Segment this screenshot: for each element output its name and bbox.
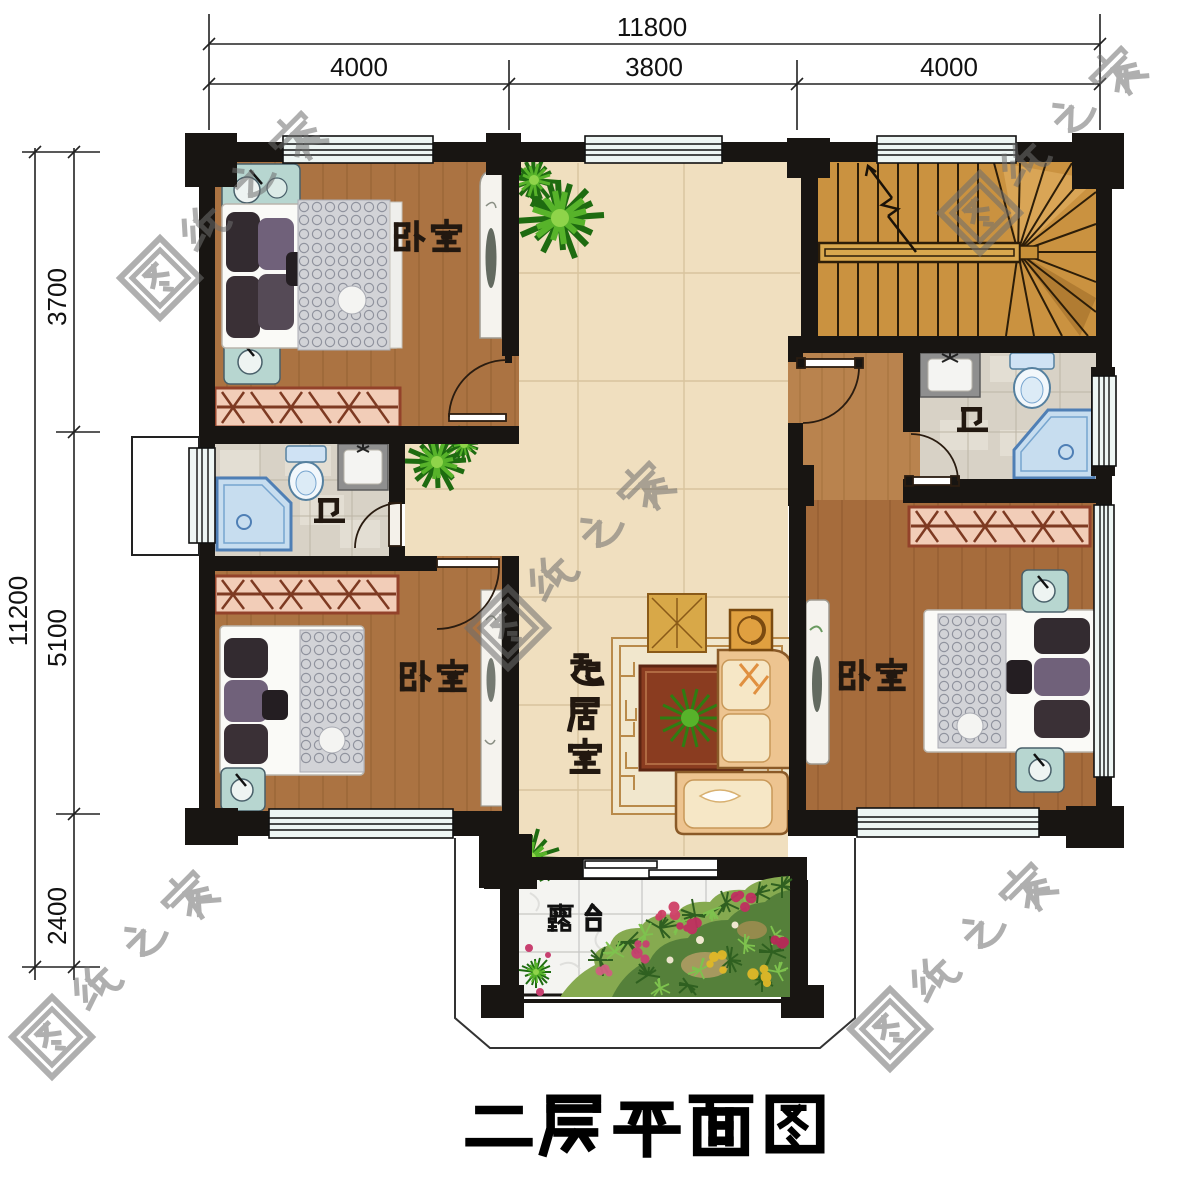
svg-text:4000: 4000: [330, 52, 388, 82]
svg-text:2400: 2400: [42, 887, 72, 945]
svg-text:11800: 11800: [617, 12, 687, 42]
svg-text:5100: 5100: [42, 609, 72, 667]
svg-text:3800: 3800: [625, 52, 683, 82]
svg-text:11200: 11200: [3, 576, 33, 646]
svg-text:4000: 4000: [920, 52, 978, 82]
svg-text:3700: 3700: [42, 268, 72, 326]
